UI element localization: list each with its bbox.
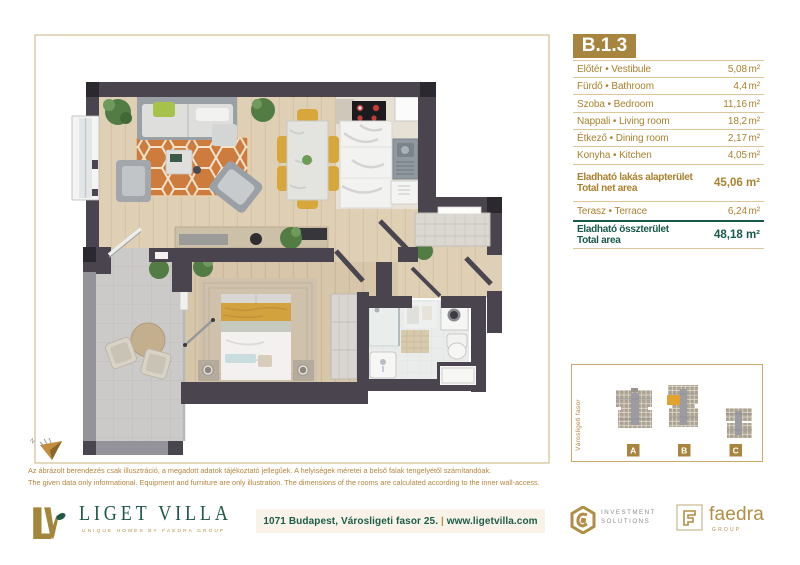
svg-text:N: N (28, 438, 35, 445)
svg-text:B: B (681, 446, 687, 456)
svg-text:A: A (630, 446, 636, 456)
svg-text:C: C (733, 446, 739, 456)
